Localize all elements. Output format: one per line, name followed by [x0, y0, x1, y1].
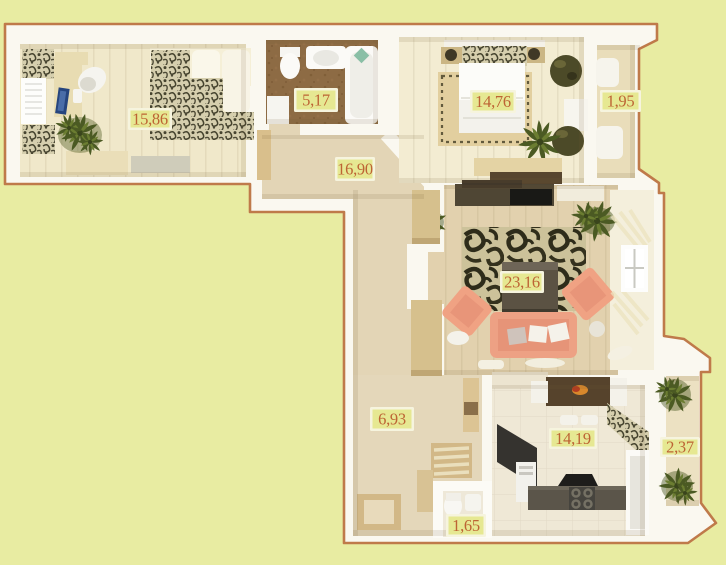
- svg-text:2,37: 2,37: [666, 438, 694, 457]
- svg-text:1,65: 1,65: [452, 516, 480, 535]
- svg-text:15,86: 15,86: [132, 110, 168, 129]
- svg-text:14,76: 14,76: [475, 92, 511, 111]
- svg-text:1,95: 1,95: [607, 92, 635, 111]
- svg-text:14,19: 14,19: [555, 429, 591, 448]
- svg-text:5,17: 5,17: [302, 91, 330, 110]
- svg-text:23,16: 23,16: [504, 273, 540, 292]
- svg-text:6,93: 6,93: [378, 410, 406, 429]
- svg-text:16,90: 16,90: [337, 160, 373, 179]
